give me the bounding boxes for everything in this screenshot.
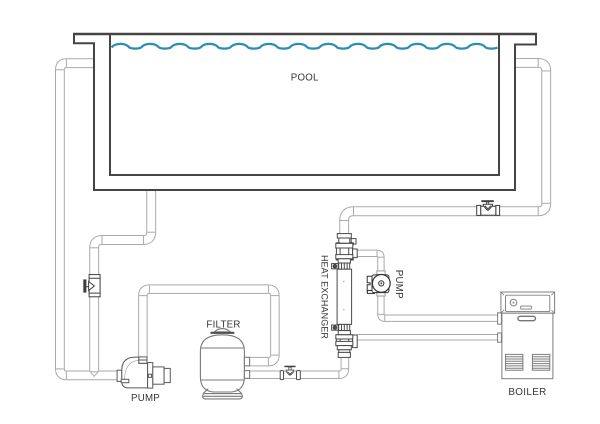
svg-text:PUMP: PUMP [393, 270, 404, 299]
svg-text:FILTER: FILTER [206, 319, 240, 330]
svg-text:BOILER: BOILER [508, 387, 546, 398]
svg-text:HEAT EXCHANGER: HEAT EXCHANGER [319, 255, 329, 339]
svg-text:PUMP: PUMP [131, 393, 160, 404]
svg-text:POOL: POOL [291, 72, 319, 83]
